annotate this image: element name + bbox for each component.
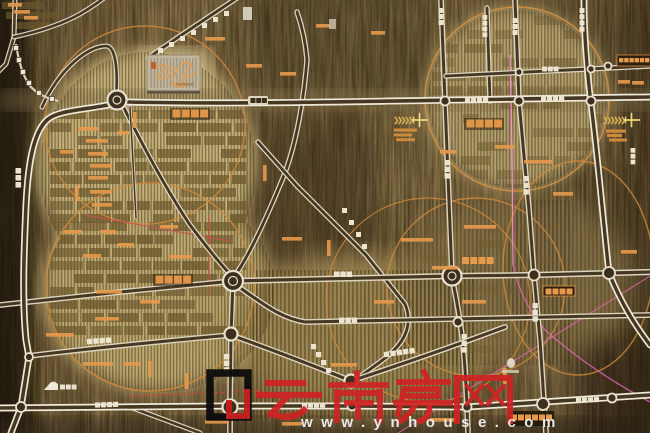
svg-text:www.ynhouse.com: www.ynhouse.com [300,414,564,431]
